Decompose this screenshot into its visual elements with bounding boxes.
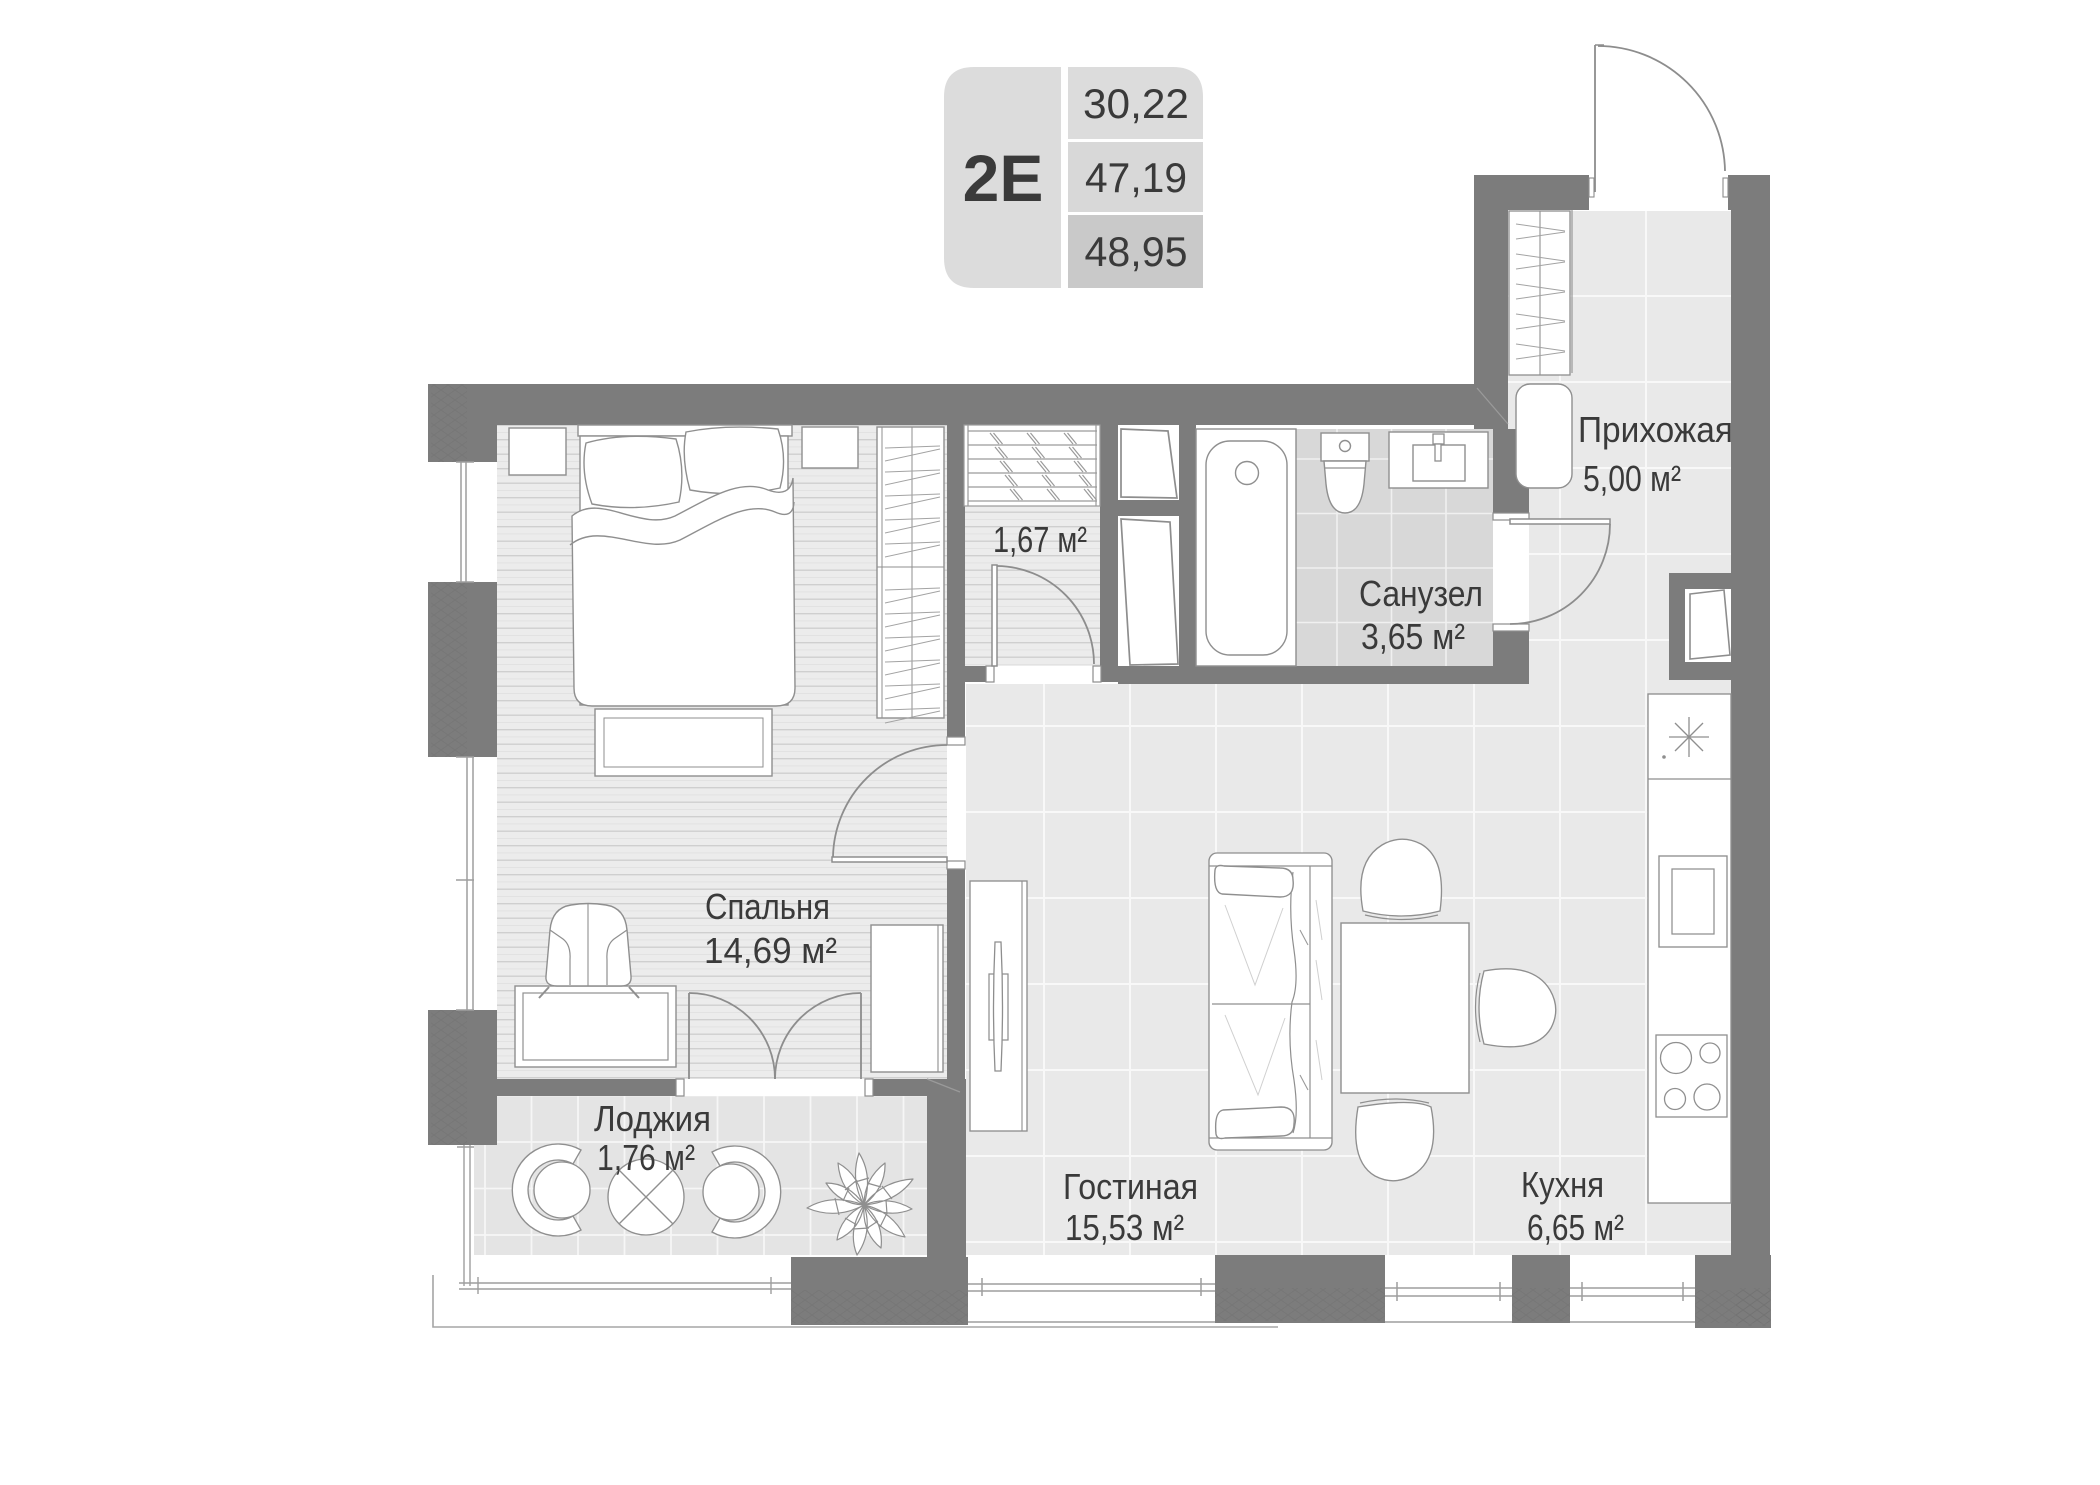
svg-text:1,67 м²: 1,67 м²: [993, 519, 1087, 560]
svg-text:Санузел: Санузел: [1359, 573, 1483, 614]
svg-text:1,76 м²: 1,76 м²: [597, 1137, 695, 1178]
svg-text:2E: 2E: [963, 141, 1044, 215]
svg-text:30,22: 30,22: [1083, 80, 1189, 127]
svg-text:Прихожая: Прихожая: [1578, 409, 1733, 450]
svg-text:Спальня: Спальня: [705, 886, 830, 927]
svg-text:47,19: 47,19: [1085, 154, 1187, 201]
svg-text:Кухня: Кухня: [1521, 1164, 1604, 1205]
svg-text:48,95: 48,95: [1085, 228, 1188, 275]
svg-text:6,65 м²: 6,65 м²: [1527, 1207, 1624, 1248]
svg-text:3,65 м²: 3,65 м²: [1361, 616, 1465, 657]
svg-text:15,53 м²: 15,53 м²: [1065, 1207, 1184, 1248]
svg-text:5,00 м²: 5,00 м²: [1583, 458, 1681, 499]
svg-text:Лоджия: Лоджия: [594, 1098, 711, 1139]
svg-text:14,69 м²: 14,69 м²: [704, 930, 837, 971]
svg-text:Гостиная: Гостиная: [1063, 1166, 1198, 1207]
